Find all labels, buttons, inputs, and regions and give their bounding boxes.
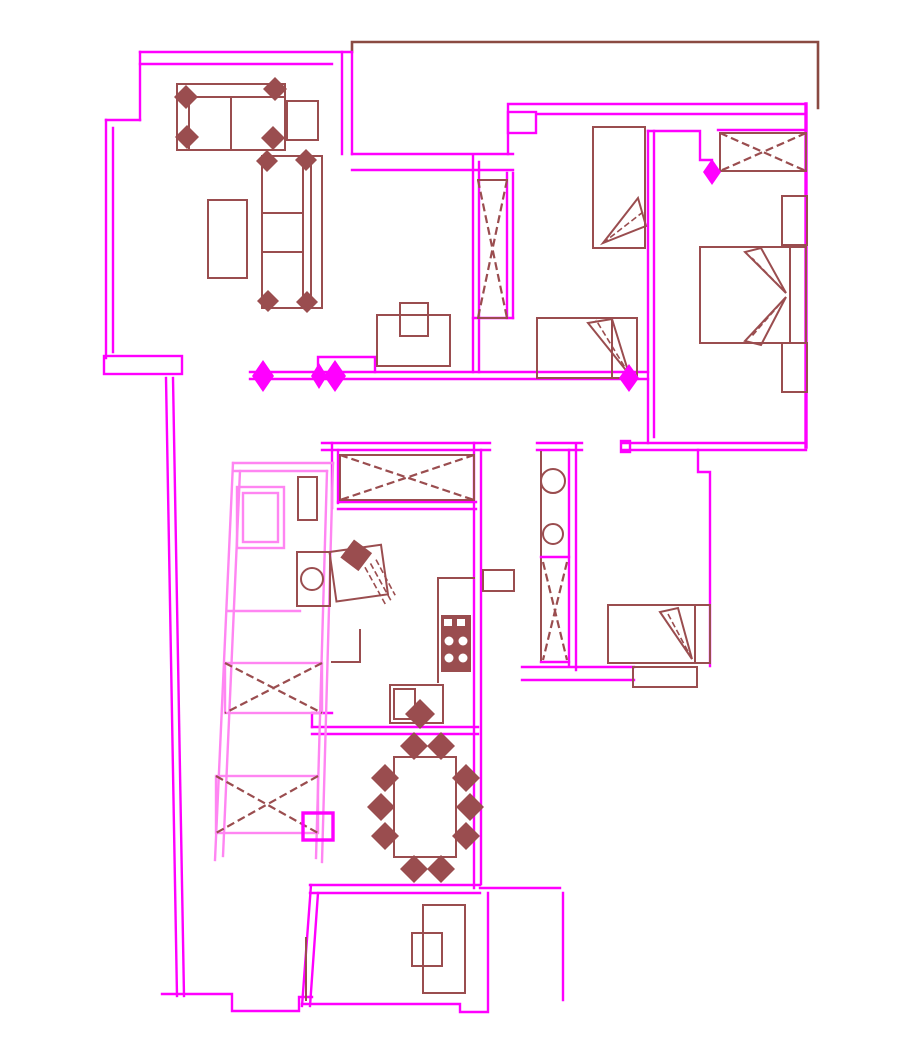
study-bottom [306, 905, 465, 1000]
floor-plan-canvas: Residential apartment floor plan (CAD li… [0, 0, 912, 1054]
dining-chairs [367, 732, 484, 883]
sink-cabinet [390, 685, 443, 729]
kitchen-wardrobe-x [340, 455, 474, 500]
door-marker-5 [703, 159, 721, 185]
kitchen [328, 455, 514, 729]
dining-area [367, 732, 484, 883]
desk-chair [328, 535, 396, 614]
single-bed-horizontal [537, 318, 637, 378]
shelf [633, 667, 697, 687]
wardrobe-x [718, 130, 806, 171]
radiator [298, 477, 317, 520]
sink [543, 524, 563, 544]
single-bed-vertical [593, 127, 646, 248]
bathroom-block [215, 463, 333, 862]
walls-lower-unit [302, 441, 710, 1012]
large-sofa [174, 77, 287, 150]
single-bed [608, 605, 710, 663]
bedroom-lower-right [608, 605, 710, 687]
dining-table [394, 757, 456, 857]
door-marker-1 [252, 360, 274, 392]
duct-x [543, 562, 567, 660]
stove-4-burner [441, 615, 471, 672]
side-table [287, 101, 318, 140]
tall-closet-x [478, 180, 507, 318]
toilet [541, 469, 565, 493]
wc-duct-column [541, 444, 576, 670]
bedroom-top-middle [478, 127, 646, 378]
chaise-sofa [256, 149, 322, 313]
coffee-table [208, 200, 247, 278]
nightstand-bottom [782, 343, 807, 392]
counter-return [332, 630, 360, 662]
walls-upper-unit [104, 52, 806, 1011]
door-marker-3 [324, 360, 346, 392]
nightstand-top [782, 196, 807, 245]
desk [423, 905, 465, 993]
floor-plan-page: Residential apartment floor plan (CAD li… [0, 0, 912, 1054]
living-room-furniture [174, 77, 450, 366]
chair [412, 933, 442, 966]
double-bed [700, 247, 806, 345]
hallway-shelf [483, 570, 514, 591]
balcony-top-outline [352, 42, 818, 108]
tv-cabinet [377, 303, 450, 366]
